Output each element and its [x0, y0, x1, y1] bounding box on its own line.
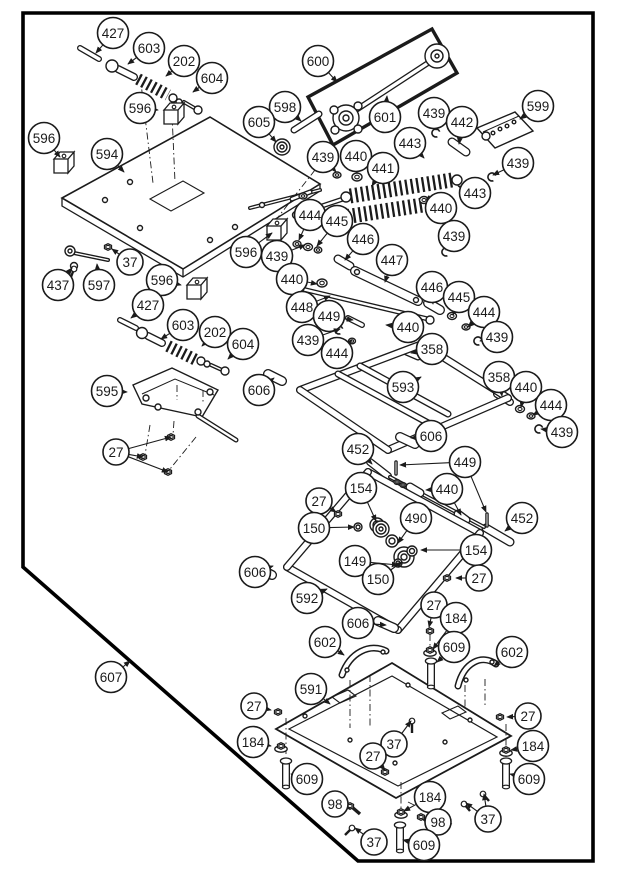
- callout-number: 595: [96, 384, 119, 399]
- callout-number: 439: [266, 249, 289, 264]
- callout-27: 27: [103, 437, 171, 472]
- part-frame-hole: [468, 718, 472, 722]
- part-washer: [394, 480, 400, 485]
- callout-number: 184: [419, 790, 442, 805]
- callout-609: 609: [403, 830, 440, 861]
- part-bolt-609-tip: [502, 785, 509, 789]
- callout-number: 593: [392, 380, 415, 395]
- callout-number: 599: [527, 99, 550, 114]
- part-washer: [314, 247, 322, 253]
- callout-number: 27: [108, 445, 123, 460]
- callout-609: 609: [291, 764, 323, 795]
- callout-leader-line: [345, 251, 353, 260]
- callout-591: 591: [296, 674, 331, 705]
- part-bolt-609-tip: [396, 849, 403, 853]
- callout-number: 446: [421, 280, 444, 295]
- callout-202: 202: [166, 46, 200, 77]
- part-bracket-arm: [198, 416, 236, 440]
- part-washer: [516, 406, 525, 413]
- callout-number: 606: [347, 616, 370, 631]
- callout-leader-line: [128, 457, 168, 472]
- part-frame-hole: [406, 683, 410, 687]
- callout-595: 595: [92, 376, 128, 407]
- callout-number: 606: [420, 429, 443, 444]
- part-bracket-599: [477, 112, 533, 148]
- callout-27: 27: [507, 703, 541, 729]
- part-bracket-hole: [195, 409, 201, 415]
- part-bracket-hole: [512, 120, 516, 124]
- callout-604: 604: [228, 329, 259, 360]
- callout-leader-line: [471, 476, 486, 512]
- callout-number: 609: [413, 838, 436, 853]
- callout-leader-line: [437, 657, 442, 662]
- part-bolt-head: [194, 106, 202, 114]
- construction-line: [170, 437, 196, 469]
- callout-number: 447: [381, 253, 404, 268]
- part-rod-427: [80, 48, 99, 59]
- callout-443: 443: [395, 128, 426, 159]
- callout-443: 443: [458, 178, 491, 209]
- part-plate-hole: [260, 203, 265, 208]
- callout-number: 202: [173, 54, 196, 69]
- callout-number: 443: [464, 186, 487, 201]
- callout-number: 27: [471, 571, 486, 586]
- part-washer: [400, 483, 406, 488]
- callout-leader-line: [128, 57, 137, 64]
- callout-number: 439: [551, 425, 574, 440]
- callout-number: 154: [350, 481, 373, 496]
- part-bracket-hole: [498, 127, 502, 131]
- part-bracket-hole: [491, 131, 495, 135]
- callout-603: 603: [128, 33, 165, 65]
- part-washer-150: [354, 523, 362, 531]
- callout-440: 440: [426, 193, 457, 224]
- callout-leader-line: [429, 618, 431, 627]
- callout-number: 445: [326, 214, 349, 229]
- callout-606: 606: [244, 375, 275, 406]
- callout-number: 444: [326, 346, 349, 361]
- callout-number: 440: [515, 380, 538, 395]
- part-bracket-hole: [155, 404, 161, 410]
- callout-number: 598: [274, 100, 297, 115]
- part-bolt-609-head: [394, 822, 405, 828]
- callout-596: 596: [29, 123, 61, 158]
- callout-number: 603: [138, 41, 161, 56]
- callout-number: 427: [137, 298, 160, 313]
- callout-number: 596: [151, 273, 174, 288]
- callout-number: 98: [327, 797, 342, 812]
- callout-number: 440: [436, 482, 459, 497]
- callout-number: 27: [365, 749, 380, 764]
- callout-leader-line: [129, 437, 172, 449]
- part-washer: [293, 241, 301, 247]
- callout-number: 184: [522, 739, 545, 754]
- callout-603: 603: [161, 310, 199, 341]
- callout-number: 358: [488, 370, 511, 385]
- part-lever-pivot: [65, 246, 75, 256]
- part-bolt-98: [353, 808, 360, 814]
- part-bracket-hole: [464, 678, 468, 682]
- callout-number: 154: [465, 543, 488, 558]
- callout-358: 358: [484, 362, 515, 397]
- callout-leader-line: [317, 233, 327, 246]
- parts-layer: [54, 29, 543, 853]
- part-washer: [527, 413, 535, 419]
- callout-number: 441: [372, 161, 395, 176]
- callout-number: 439: [486, 330, 509, 345]
- part-plate-hole: [138, 226, 143, 231]
- callout-number: 602: [501, 645, 524, 660]
- part-roller-lobe: [331, 126, 339, 134]
- part-bracket-hole: [505, 124, 509, 128]
- callout-number: 37: [122, 255, 137, 270]
- callout-number: 449: [318, 309, 341, 324]
- part-washer: [304, 244, 313, 251]
- callout-number: 37: [480, 812, 495, 827]
- callout-444: 444: [322, 338, 353, 369]
- part-link-hole: [414, 298, 419, 303]
- part-bracket-hole: [490, 660, 494, 664]
- part-screw-37: [349, 825, 355, 831]
- callout-600: 600: [303, 46, 338, 83]
- callout-452: 452: [505, 503, 538, 534]
- part-screw-37: [71, 266, 77, 272]
- callout-leader-line: [112, 249, 120, 254]
- callout-number: 358: [421, 342, 444, 357]
- part-bearing-154: [407, 546, 417, 556]
- part-ball-stud: [137, 328, 148, 339]
- callout-number: 452: [511, 511, 534, 526]
- callout-number: 607: [100, 670, 123, 685]
- callout-594: 594: [92, 139, 125, 173]
- callout-27: 27: [360, 743, 386, 770]
- part-frame-hole: [348, 738, 352, 742]
- callout-441: 441: [368, 153, 399, 187]
- callout-leader-line: [355, 828, 364, 834]
- callout-leader-line: [520, 115, 525, 119]
- callout-number: 27: [426, 598, 441, 613]
- callout-number: 27: [520, 709, 535, 724]
- callout-leader-line: [338, 651, 344, 655]
- callout-98: 98: [322, 791, 350, 817]
- callout-leader-line: [387, 96, 388, 102]
- callout-number: 202: [204, 325, 227, 340]
- callout-number: 439: [297, 333, 320, 348]
- callout-number: 439: [443, 229, 466, 244]
- callout-184: 184: [238, 727, 272, 758]
- callout-leader-line: [328, 73, 337, 83]
- part-lever-597: [74, 253, 108, 260]
- part-fitting: [204, 361, 210, 367]
- callout-leader-line: [131, 314, 136, 318]
- part-link-603: [118, 69, 134, 77]
- callout-437: 437: [43, 268, 74, 301]
- part-bracket-hole: [482, 132, 490, 140]
- callout-leader-line: [96, 45, 103, 53]
- callout-number: 27: [311, 494, 326, 509]
- callout-605: 605: [244, 107, 277, 143]
- part-bolt-609-head: [500, 758, 511, 764]
- part-bracket-hole: [207, 389, 213, 395]
- callout-439: 439: [419, 98, 450, 131]
- part-mount-596: [54, 152, 74, 173]
- callout-number: 440: [281, 272, 304, 287]
- callout-number: 609: [443, 640, 466, 655]
- callout-number: 604: [232, 337, 255, 352]
- callout-number: 439: [423, 106, 446, 121]
- callout-number: 443: [399, 136, 422, 151]
- callout-439: 439: [480, 322, 513, 353]
- callout-607: 607: [96, 661, 131, 693]
- callout-439: 439: [493, 148, 534, 179]
- callout-number: 27: [246, 699, 261, 714]
- callout-154: 154: [346, 473, 377, 522]
- parts-diagram-page: 4276032026045965986056006014394425995965…: [0, 0, 620, 876]
- callout-number: 609: [518, 772, 541, 787]
- callout-number: 439: [507, 156, 530, 171]
- callout-number: 37: [366, 835, 381, 850]
- part-bracket-hole: [381, 650, 385, 654]
- callout-number: 596: [129, 101, 152, 116]
- callout-427: 427: [96, 18, 129, 54]
- callout-number: 440: [397, 320, 420, 335]
- callout-number: 150: [303, 521, 326, 536]
- exploded-view-drawing: 4276032026045965986056006014394425995965…: [0, 0, 620, 876]
- callout-number: 445: [448, 290, 471, 305]
- callout-427: 427: [131, 290, 164, 321]
- callout-number: 150: [367, 572, 390, 587]
- callout-number: 444: [299, 208, 322, 223]
- callout-leader-line: [299, 229, 304, 240]
- callout-number: 596: [235, 245, 258, 260]
- part-ball-stud: [106, 60, 118, 72]
- part-screw-37: [480, 791, 486, 797]
- callout-37: 37: [466, 794, 501, 832]
- part-washer: [352, 173, 362, 181]
- construction-line: [173, 421, 174, 435]
- callout-leader-line: [511, 749, 518, 750]
- callout-452: 452: [343, 434, 374, 465]
- part-mount-596: [187, 278, 207, 299]
- part-mount-596: [164, 103, 184, 124]
- callout-number: 449: [454, 455, 477, 470]
- callout-number: 444: [473, 305, 496, 320]
- part-plate-hole: [128, 180, 133, 185]
- callout-leader-line: [193, 87, 200, 92]
- callout-number: 427: [102, 26, 125, 41]
- callout-number: 184: [242, 735, 265, 750]
- callout-leader-line: [330, 527, 355, 528]
- callout-447: 447: [377, 245, 408, 283]
- callout-leader-line: [493, 170, 504, 175]
- callout-37: 37: [355, 828, 387, 855]
- part-plate-hole: [233, 225, 238, 230]
- part-disc-600: [425, 44, 449, 68]
- callout-number: 149: [344, 554, 367, 569]
- callout-leader-line: [228, 355, 232, 359]
- callout-leader-line: [161, 333, 170, 339]
- callout-number: 437: [47, 278, 70, 293]
- part-spring-hook: [341, 192, 351, 202]
- callout-606: 606: [240, 557, 274, 588]
- callout-leader-line: [297, 117, 301, 121]
- callout-number: 606: [244, 565, 267, 580]
- callout-leader-line: [386, 325, 393, 326]
- callout-number: 597: [88, 278, 111, 293]
- callout-184: 184: [511, 731, 549, 762]
- part-rod-end: [426, 316, 434, 324]
- callout-440: 440: [386, 312, 424, 343]
- callout-leader-line: [123, 661, 130, 667]
- callout-number: 591: [300, 682, 323, 697]
- part-roller-lobe: [354, 125, 362, 133]
- callout-number: 604: [201, 71, 224, 86]
- callout-number: 609: [296, 772, 319, 787]
- part-bracket-hole: [345, 668, 349, 672]
- callout-number: 603: [172, 318, 195, 333]
- callout-number: 440: [430, 201, 453, 216]
- callout-number: 98: [430, 815, 445, 830]
- callout-number: 606: [248, 383, 271, 398]
- callout-number: 490: [405, 511, 428, 526]
- callout-number: 594: [96, 147, 119, 162]
- callout-599: 599: [520, 91, 554, 122]
- callout-leader-line: [541, 429, 547, 430]
- callout-number: 440: [345, 149, 368, 164]
- callout-number: 184: [445, 611, 468, 626]
- callout-27: 27: [241, 693, 271, 719]
- callout-leader-line: [307, 282, 317, 284]
- part-bolt-head: [221, 367, 229, 375]
- part-plate-hole: [208, 238, 213, 243]
- part-roller-lobe: [330, 106, 338, 114]
- part-washer: [317, 279, 327, 287]
- callout-number: 596: [33, 131, 56, 146]
- part-plate-hole: [103, 198, 108, 203]
- callout-number: 444: [540, 398, 563, 413]
- callout-number: 439: [312, 150, 335, 165]
- callout-number: 600: [307, 54, 330, 69]
- callout-609: 609: [510, 764, 545, 795]
- callout-596: 596: [125, 93, 159, 124]
- callout-439: 439: [541, 417, 578, 448]
- callout-439: 439: [439, 221, 470, 252]
- callout-number: 37: [386, 737, 401, 752]
- callout-439: 439: [308, 142, 339, 173]
- part-bolt-609-head: [280, 758, 291, 764]
- callout-leader-line: [505, 527, 510, 531]
- callout-number: 446: [352, 232, 375, 247]
- callout-number: 605: [248, 115, 271, 130]
- part-frame-hole: [393, 761, 397, 765]
- part-bolt-609-tip: [282, 785, 289, 789]
- part-frame-hole: [443, 740, 447, 744]
- callout-609: 609: [437, 632, 470, 663]
- callout-number: 448: [291, 300, 314, 315]
- callout-202: 202: [200, 317, 231, 348]
- callout-leader-line: [398, 531, 407, 543]
- part-bolt-609-head: [425, 658, 436, 664]
- part-mount-596: [267, 219, 287, 240]
- callout-leader-line: [97, 264, 98, 270]
- part-bolt-609-tip: [427, 685, 434, 689]
- callout-leader-line: [367, 502, 376, 521]
- part-bracket-hole: [143, 395, 149, 401]
- callout-leader-line: [400, 463, 450, 465]
- callout-490: 490: [398, 503, 432, 544]
- callout-number: 442: [451, 115, 474, 130]
- callout-602: 602: [310, 627, 345, 658]
- callout-37: 37: [112, 249, 143, 275]
- part-retaining-ring-439: [432, 129, 440, 137]
- callout-597: 597: [84, 264, 115, 301]
- part-washer: [299, 193, 307, 199]
- part-spacer-490: [386, 535, 398, 547]
- part-washer: [333, 172, 341, 178]
- callout-leader-line: [166, 71, 172, 76]
- part-frame-hole: [303, 714, 307, 718]
- callout-number: 601: [374, 110, 397, 125]
- part-link-hole: [355, 270, 360, 275]
- callout-leader-line: [404, 804, 416, 811]
- part-screw-37: [461, 801, 467, 807]
- callout-number: 602: [314, 635, 337, 650]
- callout-27: 27: [456, 565, 492, 591]
- part-roller-lobe: [354, 102, 362, 110]
- construction-line: [145, 425, 150, 455]
- part-spring-hook: [452, 175, 462, 185]
- callout-number: 452: [347, 442, 370, 457]
- callout-number: 592: [296, 591, 319, 606]
- part-link-603: [148, 336, 162, 343]
- part-washer: [448, 313, 457, 320]
- callout-leader-line: [269, 134, 276, 142]
